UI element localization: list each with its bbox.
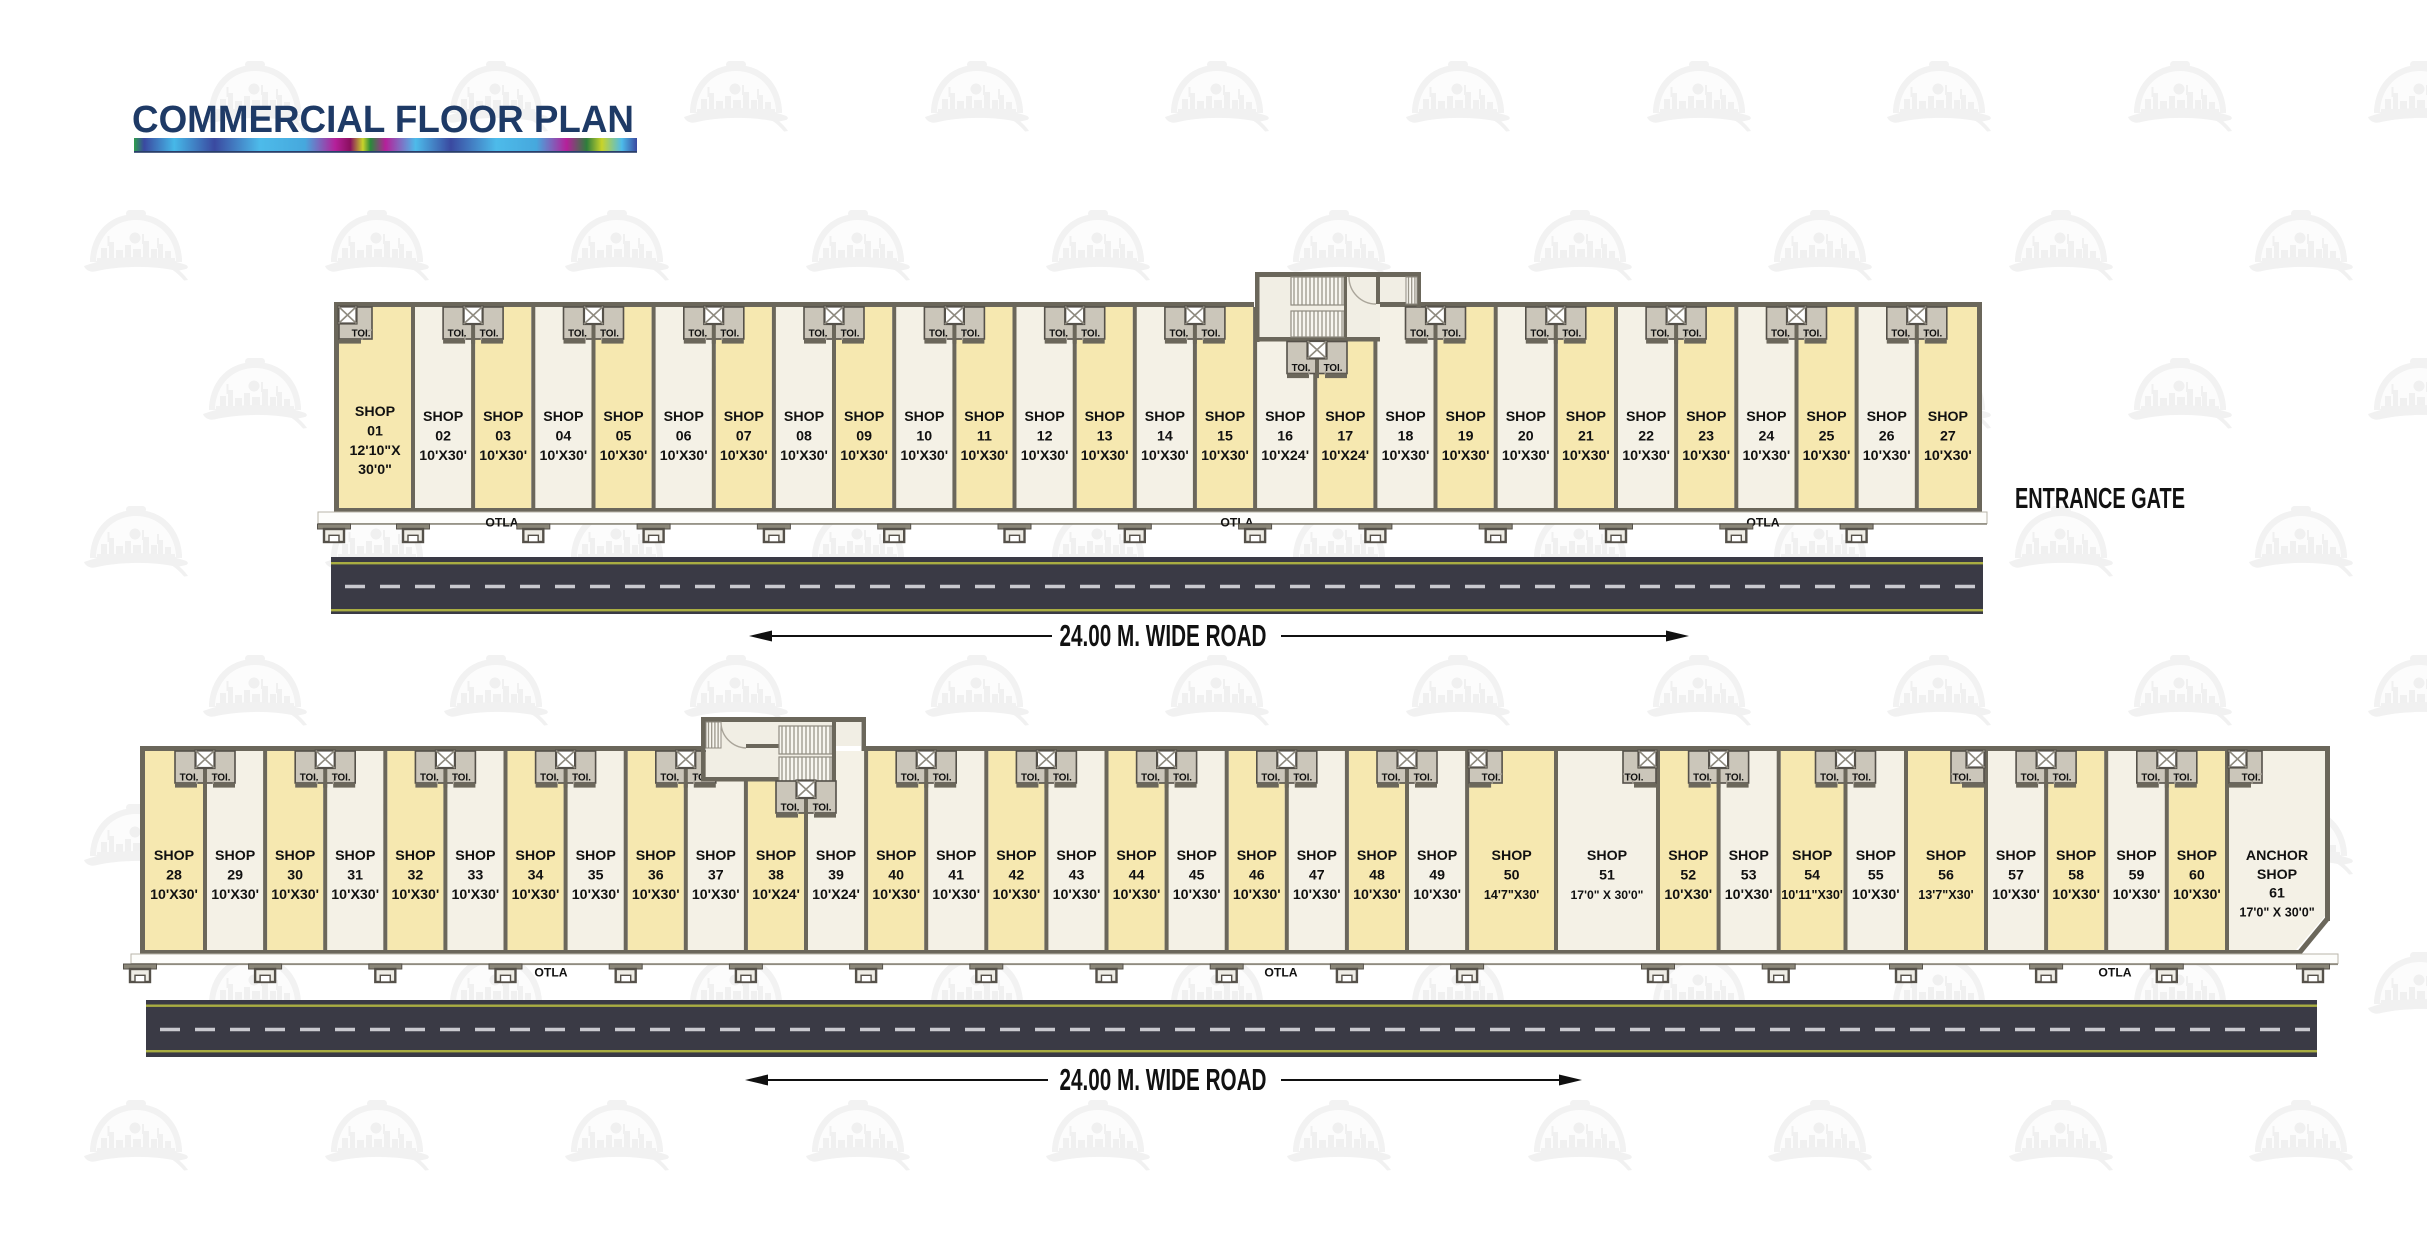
svg-text:10'X30': 10'X30' (780, 448, 828, 464)
svg-text:TOI.: TOI. (1382, 773, 1401, 784)
svg-text:OTLA: OTLA (2098, 966, 2131, 980)
svg-text:SHOP: SHOP (784, 409, 824, 425)
svg-text:TOI.: TOI. (1053, 773, 1072, 784)
svg-text:10'X30': 10'X30' (1502, 448, 1550, 464)
svg-text:04: 04 (556, 428, 572, 444)
svg-text:TOI.: TOI. (480, 329, 499, 340)
svg-text:10'X30': 10'X30' (1021, 448, 1069, 464)
svg-text:SHOP: SHOP (1056, 848, 1096, 864)
svg-text:10'X30': 10'X30' (993, 887, 1041, 903)
svg-text:17'0" X 30'0": 17'0" X 30'0" (2239, 905, 2314, 919)
svg-text:13'7"X30': 13'7"X30' (1918, 888, 1973, 902)
svg-text:TOI.: TOI. (1442, 329, 1461, 340)
svg-text:51: 51 (1599, 867, 1615, 883)
svg-text:TOI.: TOI. (1292, 363, 1311, 374)
svg-text:14'7"X30': 14'7"X30' (1484, 888, 1539, 902)
svg-text:10'X30': 10'X30' (840, 448, 888, 464)
svg-text:TOI.: TOI. (781, 803, 800, 814)
svg-text:10'X30': 10'X30' (1233, 887, 1281, 903)
svg-text:42: 42 (1009, 867, 1025, 883)
svg-text:TOI.: TOI. (1923, 329, 1942, 340)
svg-text:10'X30': 10'X30' (720, 448, 768, 464)
svg-text:10'X30': 10'X30' (932, 887, 980, 903)
svg-text:47: 47 (1309, 867, 1325, 883)
svg-text:TOI.: TOI. (929, 329, 948, 340)
svg-text:SHOP: SHOP (1085, 409, 1125, 425)
svg-text:ENTRANCE GATE: ENTRANCE GATE (2015, 483, 2185, 515)
svg-text:OTLA: OTLA (485, 516, 518, 530)
svg-text:TOI.: TOI. (452, 773, 471, 784)
svg-text:TOI.: TOI. (420, 773, 439, 784)
svg-text:SHOP: SHOP (455, 848, 495, 864)
svg-text:SHOP: SHOP (904, 409, 944, 425)
svg-text:TOI.: TOI. (1725, 773, 1744, 784)
svg-text:22: 22 (1638, 428, 1654, 444)
svg-text:10'X30': 10'X30' (1852, 887, 1900, 903)
svg-text:10: 10 (916, 428, 932, 444)
svg-text:58: 58 (2068, 867, 2084, 883)
svg-text:SHOP: SHOP (1265, 409, 1305, 425)
svg-text:10'X30': 10'X30' (540, 448, 588, 464)
svg-text:TOI.: TOI. (540, 773, 559, 784)
svg-text:TOI.: TOI. (448, 329, 467, 340)
svg-text:SHOP: SHOP (696, 848, 736, 864)
svg-text:SHOP: SHOP (1996, 848, 2036, 864)
svg-text:10'X30': 10'X30' (1413, 887, 1461, 903)
svg-text:TOI.: TOI. (572, 773, 591, 784)
svg-text:SHOP: SHOP (876, 848, 916, 864)
svg-text:SHOP: SHOP (1566, 409, 1606, 425)
svg-text:33: 33 (468, 867, 484, 883)
svg-text:10'X30': 10'X30' (1743, 448, 1791, 464)
svg-text:TOI.: TOI. (1324, 363, 1343, 374)
svg-text:27: 27 (1940, 428, 1956, 444)
svg-text:SHOP: SHOP (1792, 848, 1832, 864)
svg-text:10'X30': 10'X30' (660, 448, 708, 464)
svg-text:SHOP: SHOP (1205, 409, 1245, 425)
svg-text:TOI.: TOI. (2141, 773, 2160, 784)
svg-text:TOI.: TOI. (1820, 773, 1839, 784)
svg-text:10'X30': 10'X30' (692, 887, 740, 903)
svg-text:SHOP: SHOP (1867, 409, 1907, 425)
svg-text:SHOP: SHOP (1357, 848, 1397, 864)
svg-text:30'0": 30'0" (358, 462, 392, 478)
svg-text:10'X30': 10'X30' (1725, 887, 1773, 903)
svg-text:SHOP: SHOP (395, 848, 435, 864)
svg-text:10'X30': 10'X30' (572, 887, 620, 903)
svg-text:24.00 M. WIDE ROAD: 24.00 M. WIDE ROAD (1060, 618, 1267, 653)
svg-text:TOI.: TOI. (1081, 329, 1100, 340)
svg-text:TOI.: TOI. (720, 329, 739, 340)
svg-text:TOI.: TOI. (1049, 329, 1068, 340)
svg-text:TOI.: TOI. (1530, 329, 1549, 340)
svg-text:TOI.: TOI. (1852, 773, 1871, 784)
svg-text:06: 06 (676, 428, 692, 444)
svg-text:61: 61 (2269, 886, 2285, 902)
svg-text:SHOP: SHOP (1145, 409, 1185, 425)
svg-text:10'X30': 10'X30' (2173, 887, 2221, 903)
svg-text:08: 08 (796, 428, 812, 444)
svg-text:10'X30': 10'X30' (1173, 887, 1221, 903)
svg-text:TOI.: TOI. (2173, 773, 2192, 784)
svg-text:36: 36 (648, 867, 664, 883)
svg-text:SHOP: SHOP (1729, 848, 1769, 864)
svg-text:TOI.: TOI. (1803, 329, 1822, 340)
svg-text:05: 05 (616, 428, 632, 444)
svg-text:SHOP: SHOP (664, 409, 704, 425)
svg-text:TOI.: TOI. (901, 773, 920, 784)
svg-text:SHOP: SHOP (964, 409, 1004, 425)
svg-text:TOI.: TOI. (300, 773, 319, 784)
svg-text:SHOP: SHOP (1587, 848, 1627, 864)
svg-text:12: 12 (1037, 428, 1053, 444)
svg-text:SHOP: SHOP (515, 848, 555, 864)
svg-text:TOI.: TOI. (1953, 773, 1972, 784)
svg-text:10'X30': 10'X30' (1113, 887, 1161, 903)
svg-text:34: 34 (528, 867, 544, 883)
svg-text:26: 26 (1879, 428, 1895, 444)
svg-text:56: 56 (1938, 867, 1954, 883)
svg-text:TOI.: TOI. (180, 773, 199, 784)
svg-text:41: 41 (948, 867, 964, 883)
svg-text:SHOP: SHOP (1445, 409, 1485, 425)
svg-text:SHOP: SHOP (1417, 848, 1457, 864)
svg-text:10'X30': 10'X30' (211, 887, 259, 903)
svg-text:SHOP: SHOP (1668, 848, 1708, 864)
svg-text:02: 02 (435, 428, 451, 444)
svg-text:SHOP: SHOP (543, 409, 583, 425)
svg-text:07: 07 (736, 428, 752, 444)
svg-text:10'X30': 10'X30' (1353, 887, 1401, 903)
svg-text:SHOP: SHOP (576, 848, 616, 864)
svg-text:24.00 M. WIDE ROAD: 24.00 M. WIDE ROAD (1060, 1062, 1267, 1097)
svg-text:35: 35 (588, 867, 604, 883)
svg-text:32: 32 (408, 867, 424, 883)
svg-text:TOI.: TOI. (1651, 329, 1670, 340)
svg-text:12'10"X: 12'10"X (349, 443, 401, 459)
svg-text:SHOP: SHOP (1928, 409, 1968, 425)
svg-text:44: 44 (1129, 867, 1145, 883)
svg-text:10'X30': 10'X30' (1053, 887, 1101, 903)
svg-text:TOI.: TOI. (1693, 773, 1712, 784)
svg-text:10'X30': 10'X30' (2052, 887, 2100, 903)
svg-text:60: 60 (2189, 867, 2205, 883)
svg-text:25: 25 (1819, 428, 1835, 444)
svg-text:52: 52 (1680, 867, 1696, 883)
svg-text:10'X30': 10'X30' (1622, 448, 1670, 464)
svg-text:20: 20 (1518, 428, 1534, 444)
svg-text:SHOP: SHOP (483, 409, 523, 425)
svg-text:SHOP: SHOP (936, 848, 976, 864)
svg-text:TOI.: TOI. (813, 803, 832, 814)
svg-text:SHOP: SHOP (1926, 848, 1966, 864)
svg-text:OTLA: OTLA (1264, 966, 1297, 980)
svg-text:45: 45 (1189, 867, 1205, 883)
svg-text:10'X30': 10'X30' (512, 887, 560, 903)
svg-text:SHOP: SHOP (1626, 409, 1666, 425)
svg-text:10'X30': 10'X30' (1201, 448, 1249, 464)
svg-text:TOI.: TOI. (1021, 773, 1040, 784)
svg-text:TOI.: TOI. (660, 773, 679, 784)
svg-text:39: 39 (828, 867, 844, 883)
svg-text:SHOP: SHOP (844, 409, 884, 425)
svg-text:TOI.: TOI. (600, 329, 619, 340)
svg-text:18: 18 (1398, 428, 1414, 444)
svg-text:10'X30': 10'X30' (2113, 887, 2161, 903)
svg-text:29: 29 (227, 867, 243, 883)
svg-text:10'X30': 10'X30' (1863, 448, 1911, 464)
svg-text:SHOP: SHOP (2177, 848, 2217, 864)
svg-text:SHOP: SHOP (2257, 867, 2297, 883)
svg-text:SHOP: SHOP (1506, 409, 1546, 425)
svg-text:09: 09 (856, 428, 872, 444)
svg-text:10'X30': 10'X30' (632, 887, 680, 903)
svg-text:43: 43 (1069, 867, 1085, 883)
svg-text:SHOP: SHOP (423, 409, 463, 425)
svg-text:10'X30': 10'X30' (961, 448, 1009, 464)
svg-text:28: 28 (166, 867, 182, 883)
svg-text:10'X30': 10'X30' (1803, 448, 1851, 464)
svg-text:10'X30': 10'X30' (150, 887, 198, 903)
svg-text:10'X30': 10'X30' (872, 887, 920, 903)
svg-text:10'X30': 10'X30' (452, 887, 500, 903)
svg-text:SHOP: SHOP (1024, 409, 1064, 425)
svg-text:TOI.: TOI. (2242, 773, 2261, 784)
svg-text:TOI.: TOI. (1414, 773, 1433, 784)
svg-text:10'X30': 10'X30' (392, 887, 440, 903)
svg-text:31: 31 (347, 867, 363, 883)
svg-text:24: 24 (1759, 428, 1775, 444)
svg-text:10'X24': 10'X24' (1261, 448, 1309, 464)
svg-text:15: 15 (1217, 428, 1233, 444)
svg-text:TOI.: TOI. (1771, 329, 1790, 340)
svg-text:SHOP: SHOP (1806, 409, 1846, 425)
svg-text:ANCHOR: ANCHOR (2246, 848, 2308, 864)
svg-text:17: 17 (1337, 428, 1353, 444)
svg-text:SHOP: SHOP (996, 848, 1036, 864)
svg-text:37: 37 (708, 867, 724, 883)
svg-text:10'X30': 10'X30' (271, 887, 319, 903)
svg-text:10'X30': 10'X30' (1081, 448, 1129, 464)
svg-text:TOI.: TOI. (2053, 773, 2072, 784)
svg-text:TOI.: TOI. (933, 773, 952, 784)
svg-text:TOI.: TOI. (352, 329, 371, 340)
svg-text:COMMERCIAL FLOOR PLAN: COMMERCIAL FLOOR PLAN (132, 99, 634, 141)
svg-text:OTLA: OTLA (534, 966, 567, 980)
svg-text:10'X30': 10'X30' (1682, 448, 1730, 464)
svg-text:10'X30': 10'X30' (1924, 448, 1972, 464)
svg-text:40: 40 (888, 867, 904, 883)
svg-text:23: 23 (1698, 428, 1714, 444)
svg-text:21: 21 (1578, 428, 1594, 444)
svg-text:SHOP: SHOP (1297, 848, 1337, 864)
svg-text:TOI.: TOI. (841, 329, 860, 340)
svg-text:46: 46 (1249, 867, 1265, 883)
svg-text:50: 50 (1504, 867, 1520, 883)
svg-text:TOI.: TOI. (568, 329, 587, 340)
svg-text:54: 54 (1804, 867, 1820, 883)
svg-text:38: 38 (768, 867, 784, 883)
svg-text:SHOP: SHOP (1325, 409, 1365, 425)
svg-text:SHOP: SHOP (1237, 848, 1277, 864)
svg-text:30: 30 (287, 867, 303, 883)
svg-text:13: 13 (1097, 428, 1113, 444)
svg-text:10'X30': 10'X30' (1664, 887, 1712, 903)
svg-text:10'X30': 10'X30' (1141, 448, 1189, 464)
svg-text:10'X30': 10'X30' (1992, 887, 2040, 903)
svg-text:SHOP: SHOP (1385, 409, 1425, 425)
svg-text:10'X30': 10'X30' (1442, 448, 1490, 464)
svg-text:SHOP: SHOP (215, 848, 255, 864)
svg-text:SHOP: SHOP (636, 848, 676, 864)
svg-text:TOI.: TOI. (1410, 329, 1429, 340)
svg-text:11: 11 (977, 428, 992, 444)
svg-text:TOI.: TOI. (688, 329, 707, 340)
svg-text:10'X30': 10'X30' (1562, 448, 1610, 464)
svg-text:10'X30': 10'X30' (479, 448, 527, 464)
svg-text:10'X24': 10'X24' (752, 887, 800, 903)
svg-text:10'X30': 10'X30' (1293, 887, 1341, 903)
svg-text:01: 01 (367, 423, 383, 439)
svg-text:14: 14 (1157, 428, 1173, 444)
svg-text:SHOP: SHOP (1116, 848, 1156, 864)
svg-text:SHOP: SHOP (2056, 848, 2096, 864)
svg-text:SHOP: SHOP (1746, 409, 1786, 425)
svg-text:TOI.: TOI. (1141, 773, 1160, 784)
svg-text:SHOP: SHOP (1177, 848, 1217, 864)
svg-text:19: 19 (1458, 428, 1474, 444)
svg-text:16: 16 (1277, 428, 1293, 444)
svg-text:55: 55 (1868, 867, 1884, 883)
svg-text:TOI.: TOI. (1173, 773, 1192, 784)
svg-text:TOI.: TOI. (961, 329, 980, 340)
svg-text:SHOP: SHOP (335, 848, 375, 864)
svg-text:48: 48 (1369, 867, 1385, 883)
svg-text:10'X24': 10'X24' (812, 887, 860, 903)
svg-text:SHOP: SHOP (1686, 409, 1726, 425)
svg-text:TOI.: TOI. (212, 773, 231, 784)
svg-text:TOI.: TOI. (1201, 329, 1220, 340)
svg-text:10'X30': 10'X30' (419, 448, 467, 464)
svg-text:SHOP: SHOP (154, 848, 194, 864)
svg-text:SHOP: SHOP (1491, 848, 1531, 864)
svg-text:10'11"X30': 10'11"X30' (1781, 888, 1843, 902)
svg-text:17'0" X 30'0": 17'0" X 30'0" (1571, 888, 1644, 902)
svg-text:10'X30': 10'X30' (900, 448, 948, 464)
svg-text:TOI.: TOI. (1261, 773, 1280, 784)
svg-text:SHOP: SHOP (816, 848, 856, 864)
svg-text:49: 49 (1429, 867, 1445, 883)
svg-text:TOI.: TOI. (1562, 329, 1581, 340)
svg-text:TOI.: TOI. (2021, 773, 2040, 784)
svg-text:53: 53 (1741, 867, 1757, 883)
svg-text:SHOP: SHOP (724, 409, 764, 425)
svg-text:10'X30': 10'X30' (600, 448, 648, 464)
svg-text:SHOP: SHOP (275, 848, 315, 864)
svg-text:SHOP: SHOP (603, 409, 643, 425)
svg-text:TOI.: TOI. (1683, 329, 1702, 340)
svg-text:59: 59 (2129, 867, 2145, 883)
svg-text:TOI.: TOI. (1891, 329, 1910, 340)
svg-text:SHOP: SHOP (756, 848, 796, 864)
svg-text:TOI.: TOI. (1482, 773, 1501, 784)
svg-text:10'X24': 10'X24' (1321, 448, 1369, 464)
svg-text:03: 03 (495, 428, 511, 444)
svg-text:TOI.: TOI. (1169, 329, 1188, 340)
svg-text:TOI.: TOI. (809, 329, 828, 340)
svg-text:SHOP: SHOP (355, 404, 395, 420)
svg-text:TOI.: TOI. (332, 773, 351, 784)
svg-text:57: 57 (2008, 867, 2024, 883)
svg-text:10'X30': 10'X30' (331, 887, 379, 903)
svg-text:SHOP: SHOP (1856, 848, 1896, 864)
svg-text:10'X30': 10'X30' (1382, 448, 1430, 464)
svg-text:SHOP: SHOP (2116, 848, 2156, 864)
svg-text:TOI.: TOI. (1625, 773, 1644, 784)
svg-text:TOI.: TOI. (1293, 773, 1312, 784)
